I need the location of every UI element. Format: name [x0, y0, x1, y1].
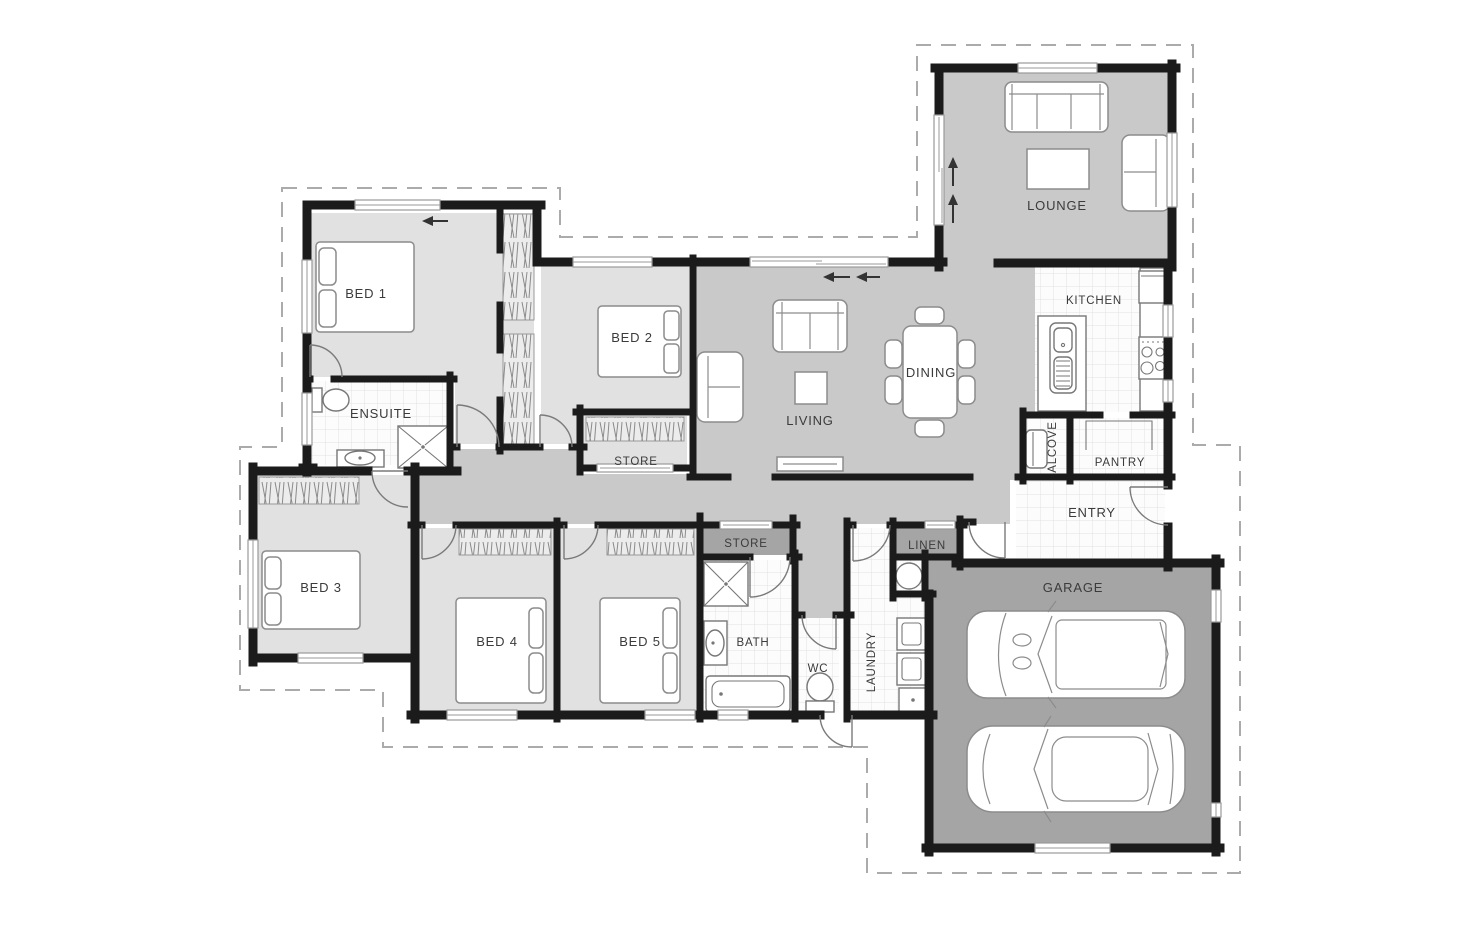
store-shelf-icon: [586, 417, 684, 441]
room-label-lounge: LOUNGE: [1027, 198, 1087, 213]
laundry-tub-icon: [899, 688, 927, 712]
bed1-left-window: [302, 260, 312, 333]
hot-water-cylinder-icon: [896, 563, 922, 589]
room-label-alcove: ALCOVE: [1047, 421, 1059, 472]
living-armchair-icon: [697, 352, 743, 422]
lounge-left-window: [934, 115, 944, 225]
room-label-store-lower: STORE: [724, 538, 767, 550]
floor-plan-page: BED 1 BED 2 ENSUITE STORE LIVING DINING …: [0, 0, 1480, 925]
living-sofa-icon: [773, 300, 847, 352]
kitchen-window-1: [1163, 305, 1173, 337]
linen-cavity-slider: [925, 521, 955, 529]
room-label-entry: ENTRY: [1068, 505, 1116, 520]
kitchen-window-2: [1163, 380, 1173, 402]
bed3-left-window: [248, 540, 258, 628]
lounge-coffee-table-icon: [1027, 149, 1089, 189]
room-label-dining: DINING: [906, 365, 956, 380]
bath-shower-icon: [704, 562, 748, 606]
room-label-store-upper: STORE: [614, 456, 657, 468]
bath-vanity-icon: [704, 621, 727, 665]
sedan-car-icon: [967, 716, 1185, 822]
bed5-wardrobe-icon: [607, 529, 694, 555]
room-label-kitchen: KITCHEN: [1066, 295, 1122, 307]
bathtub-icon: [706, 676, 790, 712]
fridge-icon: [1139, 271, 1166, 303]
ensuite-left-window: [302, 393, 312, 445]
room-label-wc: WC: [808, 663, 829, 675]
room-label-bed3: BED 3: [300, 580, 342, 595]
bed4-wardrobe-icon: [459, 529, 551, 555]
garage-door-opening: [1035, 843, 1110, 853]
room-floor-living-dining: [693, 266, 1035, 480]
kitchen-island-icon: [1038, 316, 1086, 411]
living-sliding-door: [750, 257, 888, 267]
room-label-bed1: BED 1: [345, 286, 387, 301]
lounge-sofa-icon: [1005, 82, 1108, 132]
room-label-ensuite: ENSUITE: [350, 406, 412, 421]
bed5-bed-icon: [600, 598, 680, 703]
bedroom-hall: [408, 474, 698, 524]
hall-entry-door: [969, 522, 1005, 558]
bed4-bottom-window: [447, 710, 517, 720]
ensuite-toilet-icon: [312, 388, 349, 412]
lounge-armchair-icon: [1122, 135, 1170, 211]
lounge-top-window: [1018, 63, 1097, 73]
store-lower-cavity-slider: [720, 521, 772, 529]
cooktop-icon: [1139, 337, 1166, 379]
washing-machine-icon: [897, 618, 926, 650]
room-label-garage: GARAGE: [1043, 580, 1103, 595]
room-label-linen: LINEN: [908, 540, 946, 552]
garage-right-window-2: [1211, 803, 1221, 817]
room-label-living: LIVING: [786, 413, 833, 428]
garage-right-window-1: [1211, 590, 1221, 622]
room-label-bed2: BED 2: [611, 330, 653, 345]
bed5-bottom-window: [645, 710, 695, 720]
alcove-chair-icon: [1026, 430, 1047, 468]
room-label-laundry: LAUNDRY: [866, 632, 878, 692]
room-label-bath: BATH: [736, 637, 769, 649]
lounge-right-window: [1167, 133, 1177, 207]
ensuite-vanity-icon: [337, 450, 384, 467]
bed2-window: [573, 257, 652, 267]
tv-unit-icon: [777, 457, 843, 471]
wc-toilet-icon: [806, 673, 834, 712]
bed3-wardrobe-icon: [259, 477, 359, 504]
bed4-bed-icon: [456, 598, 546, 703]
suv-car-icon: [967, 601, 1185, 708]
bedroom-hall-upper: [452, 449, 581, 477]
dryer-icon: [897, 653, 926, 685]
hall-finger: [795, 522, 848, 618]
bath-bottom-window: [718, 710, 748, 720]
ensuite-shower-icon: [398, 426, 448, 468]
bed3-bottom-window: [298, 653, 363, 663]
room-label-pantry: PANTRY: [1095, 457, 1145, 469]
room-label-bed5: BED 5: [619, 634, 661, 649]
living-side-table-icon: [795, 372, 827, 404]
bed1-window: [355, 200, 440, 210]
floor-plan-drawing: BED 1 BED 2 ENSUITE STORE LIVING DINING …: [0, 0, 1480, 925]
room-label-bed4: BED 4: [476, 634, 518, 649]
